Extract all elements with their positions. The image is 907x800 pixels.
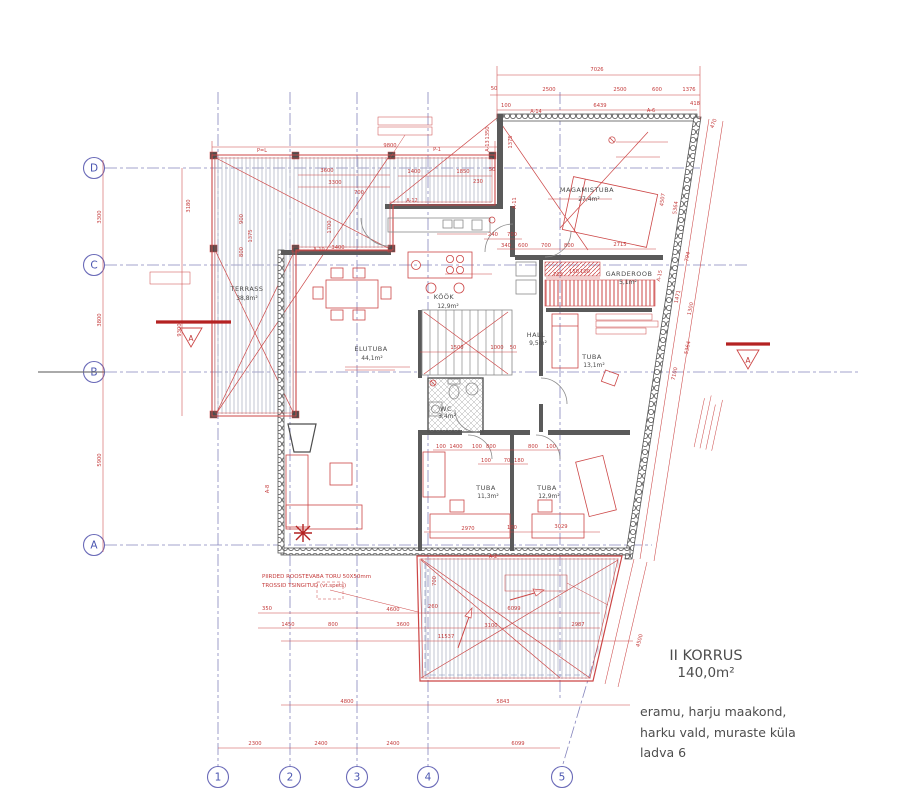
dimension-label: 1400: [407, 169, 420, 175]
dimension-label: 2500: [613, 87, 626, 93]
dimension-label: 240: [488, 232, 498, 238]
dimension-label: 700: [354, 190, 364, 196]
detail-tag-A-6: A-6: [647, 108, 655, 114]
wall-west: [278, 250, 284, 553]
grid-bubble-label-C: C: [90, 260, 97, 272]
wall-east-slanted: [625, 117, 701, 559]
dimension-label: 1300: [687, 302, 696, 316]
dimension-label: 100: [501, 103, 511, 109]
dimension-label: 9300: [177, 323, 183, 336]
hall-closets: [516, 262, 536, 294]
fireplace: [288, 424, 316, 452]
wall-hall-right-lower: [539, 404, 543, 432]
dimension-label: 50: [489, 167, 496, 173]
garderoob-shelf-lower: [545, 280, 655, 306]
dimension-label: 100: [580, 269, 590, 275]
room-name-magamistuba: MAGAMISTUBA: [560, 186, 614, 194]
dimension-label: 700: [507, 232, 517, 238]
dimension-label: 260: [428, 604, 438, 610]
wall-bedroom-top: [497, 114, 697, 121]
title-block: II KORRUS 140,0m² eramu, harju maakond, …: [640, 648, 796, 760]
dimension-label: 150: [569, 269, 579, 275]
dimension-label: 100: [436, 444, 446, 450]
room-name-tuba-113: TUBA: [475, 484, 496, 492]
room-area-wc: 3,4m²: [438, 413, 456, 420]
dimension-label: 794: [684, 251, 692, 263]
detail-tag-A-14: A-14: [530, 109, 541, 115]
dimension-label: 1500: [450, 345, 463, 351]
grid-bubble-label-D: D: [90, 163, 98, 175]
room-name-hall: HALL: [527, 331, 546, 339]
dimension-label: 700: [432, 576, 438, 586]
dimension-label: 1376: [682, 87, 695, 93]
room-name-tuba-131: TUBA: [581, 353, 602, 361]
wall-rooms-top-3: [548, 430, 630, 435]
wall-bedroom-bottom: [515, 255, 663, 260]
dimension-label: 100: [481, 458, 491, 464]
dimension-label: 50: [491, 86, 498, 92]
dimension-label: 1000: [490, 345, 503, 351]
dimension-label: 7026: [590, 67, 603, 73]
room-name-tuba-129: TUBA: [536, 484, 557, 492]
room-area-terrass: 38,8m²: [236, 295, 258, 302]
wall-between-rooms: [510, 435, 514, 551]
dimension-label: 700: [541, 243, 551, 249]
dimension-label: 5843: [496, 699, 509, 705]
room-name-elutuba: ELUTUBA: [354, 345, 387, 353]
dimension-label: 3100: [484, 623, 497, 629]
grid-bubble-label-A: A: [90, 540, 98, 552]
kitchen-counter: [388, 218, 490, 232]
dimension-label: 2400: [386, 741, 399, 747]
dimension-label: 800: [239, 247, 245, 257]
dimension-label: 11537: [438, 634, 455, 640]
dimension-label: 1450: [281, 622, 294, 628]
grid-bubble-label-B: B: [90, 367, 97, 379]
room-area-hall: 9,5m²: [529, 340, 547, 347]
dimension-label: 418: [690, 101, 700, 107]
dimension-label: 5900: [97, 453, 103, 466]
floor-title: II KORRUS: [669, 648, 742, 664]
dimension-label: 7100: [671, 367, 680, 381]
room-area-elutuba: 44,1m²: [361, 355, 383, 362]
room-area-magamistuba: 27,4m²: [578, 196, 600, 203]
room-area-tuba-131: 13,1m²: [583, 362, 605, 369]
detail-tag-P-1: P-1: [433, 147, 441, 153]
section-marker-right: A: [726, 344, 770, 369]
dimension-label: 4500: [635, 634, 644, 648]
dimension-label: 600: [518, 243, 528, 249]
detail-tag-A-2: A-2: [489, 554, 497, 560]
dimension-label: 4800: [340, 699, 353, 705]
dimension-label: 1350: [485, 126, 491, 139]
dining-table: [313, 268, 391, 320]
wall-garderoob-bottom: [546, 308, 652, 312]
dimension-label: 800: [528, 444, 538, 450]
detail-tag-A-8: A-8: [265, 485, 271, 493]
dimension-label: 1375: [248, 229, 254, 242]
dimension-label: 230: [473, 179, 483, 185]
grid-bubble-label-3: 3: [354, 772, 361, 784]
room-name-kook: KÖÖK: [434, 292, 455, 301]
dimension-label: 3600: [396, 622, 409, 628]
dimension-label: 5364: [684, 340, 693, 355]
railing-note-line1: PIIRDED ROOSTEVABA TORU 50X50mm: [262, 574, 371, 580]
section-label: A: [745, 356, 751, 365]
room-area-garderoob: 5,1m²: [619, 279, 637, 286]
room-area-kook: 12,9m²: [437, 303, 459, 310]
dimension-label: 2300: [248, 741, 261, 747]
dimension-label: 600: [652, 87, 662, 93]
dimension-label: 800: [486, 444, 496, 450]
dimension-label: 1375: [508, 135, 514, 148]
dimension-label: 900: [239, 214, 245, 224]
dimension-label: 2987: [571, 622, 584, 628]
address-line-3: ladva 6: [640, 745, 686, 760]
wall-hall-right-upper: [539, 257, 543, 376]
dimension-label: 470: [710, 118, 719, 129]
dimension-label: 800: [328, 622, 338, 628]
dimension-label: 1700: [327, 220, 333, 233]
dimension-label: 100: [507, 525, 517, 531]
dimension-label: 340: [501, 243, 511, 249]
dimension-label: 6439: [593, 103, 606, 109]
grid-bubble-label-5: 5: [559, 772, 566, 784]
wall-room-left: [418, 435, 422, 551]
dimension-label: 1400: [449, 444, 462, 450]
detail-tag-A-10: A-10: [313, 247, 324, 253]
tuba13-bed: [552, 314, 578, 368]
dimension-label: 4507: [659, 193, 667, 207]
dimension-label: 180: [514, 458, 524, 464]
room-name-wc: WC: [440, 405, 452, 413]
dimension-label: 3300: [97, 210, 103, 223]
dimension-label: 800: [564, 243, 574, 249]
dimension-label: 1850: [456, 169, 469, 175]
grid-bubble-label-4: 4: [425, 772, 432, 784]
detail-tag-A-12: A-12: [406, 198, 417, 204]
wall-south: [281, 548, 630, 555]
dimension-label: 100: [546, 444, 556, 450]
floor-plan-page: DCBA12345: [0, 0, 907, 800]
room-area-tuba-113: 11,3m²: [477, 493, 499, 500]
address-line-2: harku vald, muraste küla: [640, 725, 796, 740]
grid-bubble-label-1: 1: [215, 772, 222, 784]
dimension-label: 3180: [186, 199, 192, 212]
dimension-label: 1471: [674, 290, 683, 304]
address-line-1: eramu, harju maakond,: [640, 704, 786, 719]
dimension-label: 6099: [511, 741, 524, 747]
dimension-label: 2400: [314, 741, 327, 747]
room-name-terrass: TERRASS: [229, 285, 263, 293]
dimension-labels: 7026502500250060013761006439418980036003…: [97, 67, 719, 747]
dimension-label: 2715: [613, 242, 626, 248]
dimension-label: 4600: [386, 607, 399, 613]
detail-tag-A-15: A-15: [656, 270, 664, 282]
detail-tag-A-11: A-11: [512, 197, 518, 208]
detail-tag-A-13: A-13: [485, 140, 491, 151]
dimension-label: 6099: [507, 606, 520, 612]
room-area-tuba-129: 12,9m²: [538, 493, 560, 500]
floor-area: 140,0m²: [677, 665, 734, 681]
dimension-label: 2500: [542, 87, 555, 93]
dimension-label: 705: [553, 272, 563, 278]
dimension-label: 3029: [554, 524, 567, 530]
staircase[interactable]: [422, 310, 512, 375]
floor-plan-svg: DCBA12345: [0, 0, 907, 800]
wall-bedroom-left: [497, 114, 503, 207]
dimension-label: 350: [262, 606, 272, 612]
detail-tag-P=L: P=L: [257, 148, 267, 154]
dimension-label: 3300: [328, 180, 341, 186]
dimension-label: 70: [504, 458, 511, 464]
dimension-label: 9800: [383, 143, 396, 149]
grid-bubble-label-2: 2: [287, 772, 294, 784]
railing-note-line2: TROSSID TSINGITUD (vt.spets): [261, 583, 346, 589]
dimension-label: 3800: [97, 313, 103, 326]
plant-symbol: [294, 524, 312, 542]
dimension-label: 50: [510, 345, 517, 351]
livingroom-sofa: [286, 455, 362, 529]
room-name-garderoob: GARDEROOB: [606, 270, 653, 278]
dimension-label: 3400: [331, 245, 344, 251]
dimension-label: 2970: [461, 526, 474, 532]
wall-stair-left: [418, 310, 422, 378]
wall-rooms-top-2: [480, 430, 530, 435]
dimension-label: 100: [472, 444, 482, 450]
section-label: A: [188, 334, 194, 343]
dimension-label: 3600: [320, 168, 333, 174]
kitchen-island: [408, 252, 472, 293]
